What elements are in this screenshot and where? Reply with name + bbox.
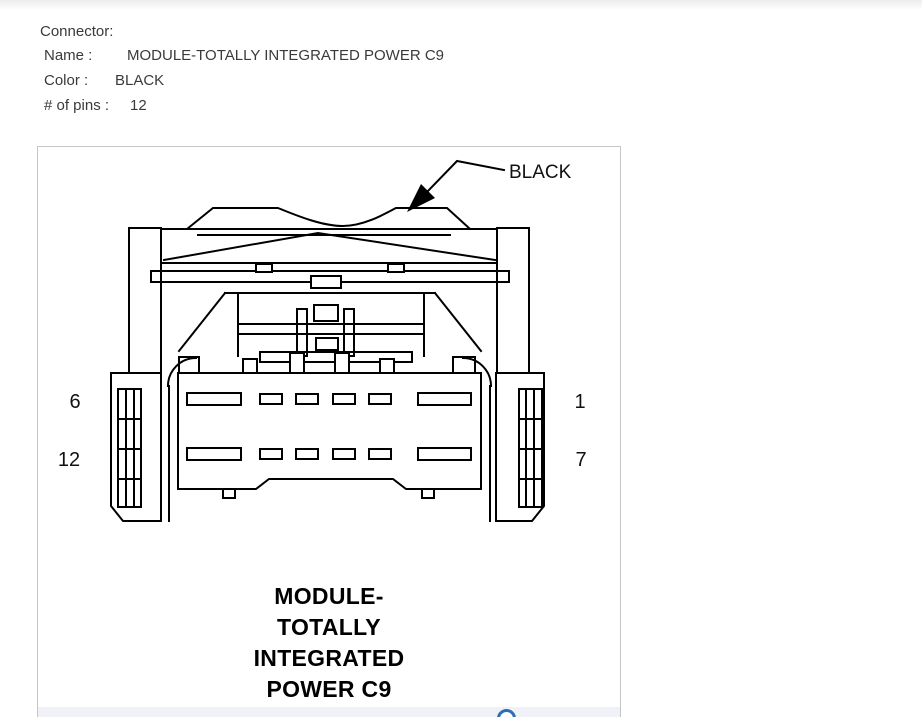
pin-label-1: 1 xyxy=(574,391,585,413)
caption-line-1: MODULE- xyxy=(38,581,620,612)
field-label-pins: # of pins : xyxy=(44,93,130,118)
field-value-pins: 12 xyxy=(130,97,147,114)
color-callout-label: BLACK xyxy=(509,162,572,183)
connector-outline xyxy=(111,161,544,521)
field-value-color: BLACK xyxy=(115,72,164,89)
connector-header: Connector: Name :MODULE-TOTALLY INTEGRAT… xyxy=(40,21,444,118)
field-value-name: MODULE-TOTALLY INTEGRATED POWER C9 xyxy=(127,47,444,64)
caption-line-2: TOTALLY xyxy=(38,612,620,643)
color-leader-line xyxy=(407,161,504,212)
field-row-color: Color :BLACK xyxy=(44,68,444,93)
caption-line-4: POWER C9 xyxy=(38,674,620,705)
pin-label-12: 12 xyxy=(58,449,80,471)
top-toolbar-shadow xyxy=(0,0,922,10)
pin-label-6: 6 xyxy=(69,391,80,413)
field-label-color: Color : xyxy=(44,68,115,93)
page-title: Connector: xyxy=(40,21,444,43)
diagram-panel: BLACK 6 1 12 7 MODULE- TOTALLY INTEGRATE… xyxy=(37,146,621,717)
field-row-pins: # of pins :12 xyxy=(44,93,444,118)
pin-label-7: 7 xyxy=(575,449,586,471)
caption-line-3: INTEGRATED xyxy=(38,643,620,674)
connector-caption: MODULE- TOTALLY INTEGRATED POWER C9 xyxy=(38,581,620,705)
field-label-name: Name : xyxy=(44,43,127,68)
field-row-name: Name :MODULE-TOTALLY INTEGRATED POWER C9 xyxy=(44,43,444,68)
